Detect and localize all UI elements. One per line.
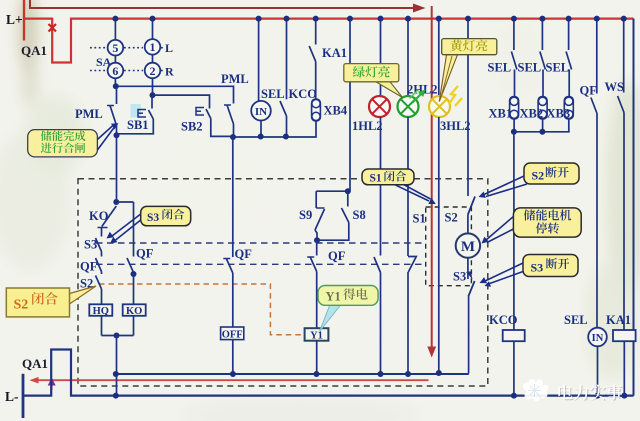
svg-text:WS: WS [605, 80, 625, 94]
svg-text:QF: QF [136, 247, 154, 261]
svg-text:S3: S3 [84, 238, 97, 252]
svg-text:M: M [461, 239, 475, 255]
svg-text:SEL: SEL [488, 61, 512, 75]
svg-text:5: 5 [112, 41, 118, 55]
svg-text:QF: QF [580, 84, 598, 98]
svg-text:S1: S1 [413, 212, 426, 226]
svg-text:S3: S3 [147, 212, 159, 224]
svg-text:KCO: KCO [289, 87, 318, 101]
svg-text:SEL: SEL [564, 313, 588, 327]
svg-text:KA1: KA1 [322, 46, 347, 60]
svg-text:XB4: XB4 [324, 104, 348, 118]
svg-text:QA1: QA1 [21, 43, 47, 58]
svg-text:IN: IN [592, 333, 604, 344]
svg-text:S2: S2 [445, 211, 458, 225]
svg-text:QF: QF [235, 247, 253, 261]
svg-text:KO: KO [126, 306, 142, 317]
svg-text:L-: L- [5, 389, 19, 404]
svg-text:QF: QF [80, 260, 98, 274]
svg-text:S1: S1 [370, 172, 382, 184]
svg-text:OFF: OFF [222, 329, 243, 340]
svg-text:S3: S3 [453, 270, 466, 284]
svg-text:QF: QF [328, 249, 346, 263]
svg-text:HQ: HQ [93, 306, 109, 317]
svg-text:Y1: Y1 [326, 290, 341, 304]
svg-text:Y1: Y1 [310, 331, 323, 342]
svg-text:S2: S2 [14, 298, 29, 313]
svg-text:PML: PML [221, 72, 249, 86]
svg-text:XB1: XB1 [489, 107, 513, 121]
svg-text:KA1: KA1 [606, 313, 631, 327]
svg-text:L+: L+ [6, 12, 23, 27]
svg-text:PML: PML [75, 107, 103, 121]
svg-text:S8: S8 [353, 208, 366, 222]
svg-text:QA1: QA1 [22, 356, 48, 371]
svg-text:SB2: SB2 [181, 120, 203, 134]
svg-text:1: 1 [150, 40, 156, 54]
svg-text:L: L [165, 41, 173, 55]
svg-text:SB1: SB1 [127, 118, 149, 132]
svg-text:1HL2: 1HL2 [352, 119, 383, 133]
svg-text:XB2: XB2 [520, 107, 544, 121]
svg-text:KCO: KCO [489, 313, 518, 327]
svg-text:SEL: SEL [261, 87, 285, 101]
svg-text:3HL2: 3HL2 [440, 119, 471, 133]
svg-text:IN: IN [255, 106, 267, 118]
svg-text:S9: S9 [299, 208, 312, 222]
svg-text:S2: S2 [532, 169, 545, 183]
svg-text:R: R [165, 65, 174, 79]
svg-text:2: 2 [150, 64, 156, 78]
svg-text:SEL: SEL [518, 61, 542, 75]
svg-text:XB3: XB3 [547, 107, 571, 121]
svg-text:6: 6 [112, 64, 118, 78]
svg-text:SEL: SEL [546, 61, 570, 75]
svg-text:S3: S3 [531, 261, 544, 275]
